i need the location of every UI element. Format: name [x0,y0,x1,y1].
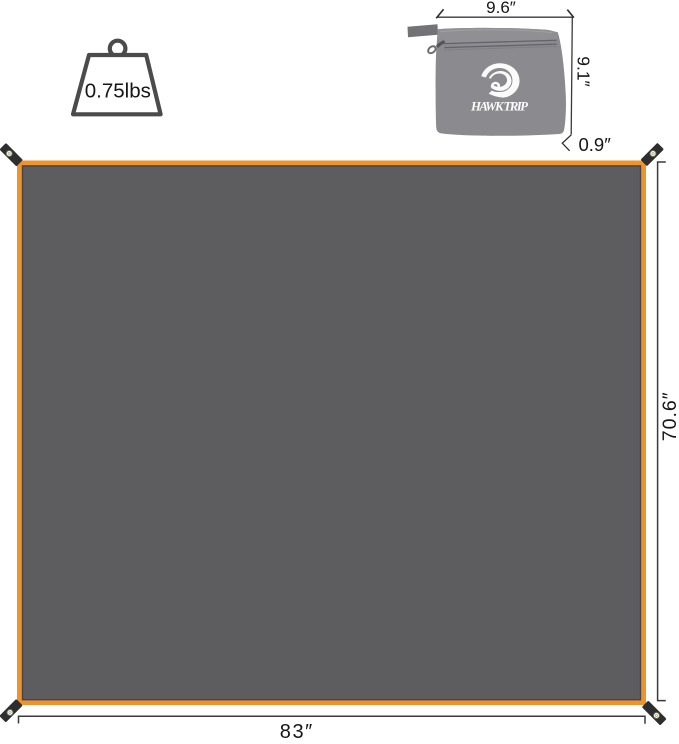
svg-text:0.75lbs: 0.75lbs [85,80,151,103]
svg-text:0.9″: 0.9″ [579,134,612,155]
svg-text:83″: 83″ [280,721,313,739]
svg-text:70.6″: 70.6″ [659,392,679,441]
svg-text:9.6″: 9.6″ [486,0,516,17]
svg-text:9.1″: 9.1″ [574,56,594,87]
svg-text:HAWK TRIP: HAWK TRIP [470,100,528,114]
